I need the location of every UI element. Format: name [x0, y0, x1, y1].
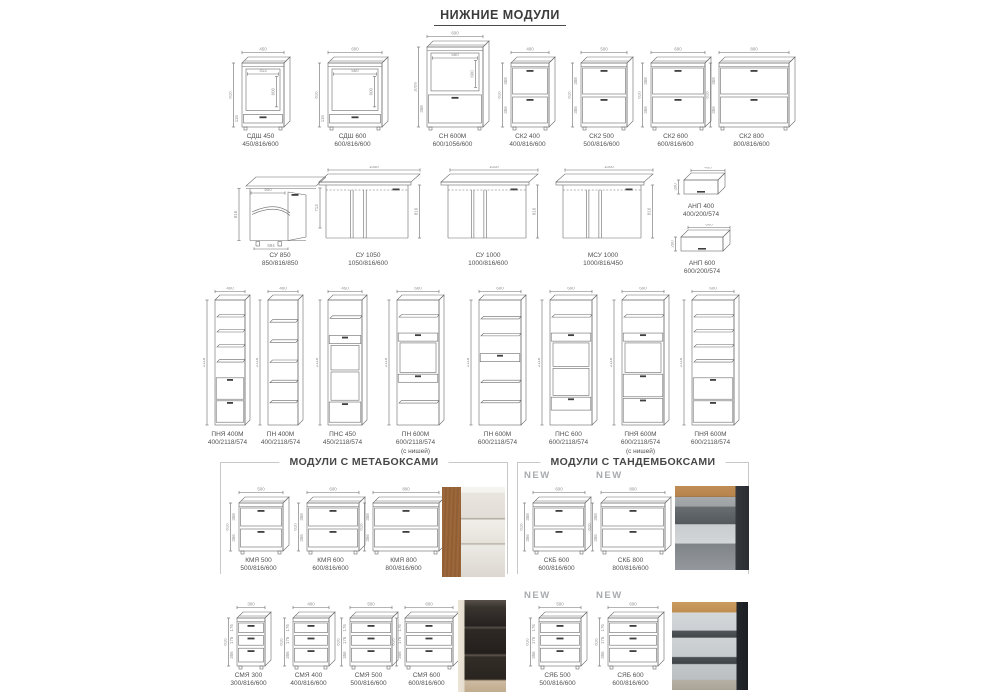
module-sdsh-600: 560600116600816СДШ 600600/816/600: [315, 47, 390, 150]
svg-text:176: 176: [397, 636, 402, 644]
svg-text:600: 600: [351, 47, 359, 52]
svg-text:358: 358: [711, 77, 716, 85]
svg-text:356: 356: [525, 534, 530, 542]
pns-450-drawing: 4502118: [316, 287, 369, 429]
svg-text:200: 200: [671, 240, 675, 248]
module-pns-450: 4502118ПНС 450450/2118/574: [316, 287, 369, 448]
svg-text:176: 176: [229, 636, 234, 644]
svg-text:358: 358: [419, 105, 424, 113]
svg-text:816: 816: [294, 523, 298, 531]
module-pns-600: 6002118ПНС 600600/2118/574: [538, 287, 599, 448]
svg-text:356: 356: [229, 651, 234, 659]
svg-text:176: 176: [531, 624, 536, 632]
svg-text:356: 356: [365, 534, 370, 542]
module-anp-600: 600200АНП 600600/200/574: [671, 224, 733, 277]
svg-text:2118: 2118: [467, 357, 470, 367]
metabox-photo-2: [458, 600, 506, 692]
pnya-600m-nisha-drawing: 6002118: [610, 287, 671, 429]
svg-text:600: 600: [271, 87, 276, 95]
tandembox-photo-1: [675, 486, 749, 570]
module-name: АНП 600: [637, 260, 767, 268]
module-dims: 1000/816/600: [423, 260, 553, 268]
anp-600-drawing: 600200: [671, 224, 733, 258]
svg-text:816: 816: [520, 523, 524, 531]
svg-text:400: 400: [704, 167, 712, 170]
module-label: СК2 800800/816/600: [687, 133, 817, 150]
svg-text:816: 816: [588, 523, 592, 531]
svg-text:600: 600: [329, 487, 337, 492]
svg-text:816: 816: [337, 638, 341, 646]
svg-text:816: 816: [229, 91, 233, 99]
svg-text:816: 816: [526, 638, 530, 646]
su-1050-drawing: 1050816: [313, 166, 423, 250]
module-pnya-600m: 6002118ПНЯ 600М600/2118/574: [680, 287, 741, 448]
svg-text:816: 816: [234, 210, 238, 218]
smya-600-drawing: 176176356600816: [392, 602, 461, 670]
svg-text:356: 356: [531, 651, 536, 659]
smya-400-drawing: 176176356400816: [280, 602, 337, 670]
module-dims: 1050/816/600: [303, 260, 433, 268]
svg-text:816: 816: [224, 638, 228, 646]
svg-text:358: 358: [299, 513, 304, 521]
catalog-page: НИЖНИЕ МОДУЛИ МОДУЛИ С МЕТАБОКСАМИ МОДУЛ…: [0, 0, 1000, 700]
svg-text:116: 116: [320, 115, 325, 123]
svg-text:413: 413: [259, 68, 267, 73]
anp-400-drawing: 400200: [674, 167, 728, 201]
svg-text:600: 600: [369, 87, 374, 95]
pnya-400m-drawing: 4002118: [203, 287, 252, 429]
svg-text:600: 600: [674, 47, 682, 52]
svg-text:594: 594: [267, 243, 275, 248]
new-badge: NEW: [596, 590, 623, 601]
module-label: АНП 600600/200/574: [637, 260, 767, 277]
pn-600m-drawing: 6002118: [467, 287, 528, 429]
sk2-800-drawing: 358356800816: [706, 47, 797, 131]
module-sk2-800: 358356800816СК2 800800/816/600: [706, 47, 797, 150]
svg-text:816: 816: [360, 523, 364, 531]
svg-text:2118: 2118: [385, 357, 388, 367]
svg-text:816: 816: [498, 91, 502, 99]
svg-text:356: 356: [299, 534, 304, 542]
svg-text:500: 500: [367, 602, 375, 607]
svg-text:356: 356: [711, 106, 716, 114]
pn-600m-nisha-drawing: 6002118: [385, 287, 446, 429]
svg-text:358: 358: [525, 513, 530, 521]
svg-text:200: 200: [674, 183, 678, 191]
svg-text:500: 500: [257, 487, 265, 492]
svg-text:358: 358: [365, 513, 370, 521]
skb-800-drawing: 358356800816: [588, 487, 673, 555]
kmya-600-drawing: 358356600816: [294, 487, 367, 555]
svg-text:356: 356: [593, 534, 598, 542]
svg-text:356: 356: [342, 651, 347, 659]
svg-text:358: 358: [503, 77, 508, 85]
module-su-1050: 1050816СУ 10501050/816/600: [313, 166, 423, 269]
svg-text:356: 356: [600, 651, 605, 659]
module-anp-400: 400200АНП 400400/200/574: [674, 167, 728, 220]
smya-500-drawing: 176176356500816: [337, 602, 400, 670]
svg-text:816: 816: [414, 207, 419, 215]
module-label: ПНЯ 600М600/2118/574: [646, 431, 776, 448]
module-name: ПНЯ 600М: [646, 431, 776, 439]
module-label: АНП 400400/200/574: [636, 203, 766, 220]
svg-text:176: 176: [342, 624, 347, 632]
svg-text:450: 450: [259, 47, 267, 52]
module-skb-800: 358356800816СКБ 800800/816/600: [588, 487, 673, 574]
svg-text:2118: 2118: [610, 357, 613, 367]
svg-text:1056: 1056: [414, 82, 418, 92]
svg-text:358: 358: [231, 513, 236, 521]
svg-text:356: 356: [285, 651, 290, 659]
svg-text:2118: 2118: [680, 357, 683, 367]
module-label: СУ 10001000/816/600: [423, 252, 553, 269]
new-badge: NEW: [524, 590, 551, 601]
svg-text:600: 600: [470, 70, 475, 78]
svg-text:176: 176: [397, 624, 402, 632]
module-label: СУ 10501050/816/600: [303, 252, 433, 269]
metabox-photo-1: [442, 487, 505, 577]
module-dims: 600/200/574: [637, 268, 767, 276]
svg-text:356: 356: [573, 106, 578, 114]
svg-text:500: 500: [556, 602, 564, 607]
svg-text:816: 816: [706, 91, 710, 99]
sk2-600-drawing: 358356600816: [638, 47, 713, 131]
module-dims: 600/2118/574: [646, 439, 776, 447]
module-name: АНП 400: [636, 203, 766, 211]
svg-text:2118: 2118: [256, 357, 259, 367]
tandembox-section-title: МОДУЛИ С ТАНДЕМБОКСАМИ: [541, 456, 726, 468]
svg-text:600: 600: [629, 602, 637, 607]
sk2-500-drawing: 358356500816: [568, 47, 635, 131]
tandembox-photo-2: [672, 602, 748, 690]
module-pn-400m: 4002118ПН 400М400/2118/574: [256, 287, 305, 448]
module-pnya-400m: 4002118ПНЯ 400М400/2118/574: [203, 287, 252, 448]
svg-text:600: 600: [451, 31, 459, 36]
module-su-1000: 1000816СУ 10001000/816/600: [435, 166, 541, 269]
svg-text:600: 600: [496, 287, 504, 291]
svg-text:800: 800: [750, 47, 758, 52]
syab-600-drawing: 176176356600816: [595, 602, 666, 670]
svg-text:816: 816: [595, 638, 599, 646]
svg-text:176: 176: [600, 624, 605, 632]
svg-text:400: 400: [226, 287, 234, 291]
smya-300-drawing: 176176356300816: [224, 602, 273, 670]
metabox-section-title: МОДУЛИ С МЕТАБОКСАМИ: [279, 456, 448, 468]
svg-text:600: 600: [414, 287, 422, 291]
svg-text:2118: 2118: [538, 357, 541, 367]
pns-600-drawing: 6002118: [538, 287, 599, 429]
svg-text:400: 400: [279, 287, 287, 291]
kmya-500-drawing: 358356500816: [226, 487, 291, 555]
svg-text:600: 600: [567, 287, 575, 291]
module-dims: 800/816/600: [687, 141, 817, 149]
sn-600m-drawing: 5606003586001056: [414, 31, 491, 131]
svg-text:300: 300: [247, 602, 255, 607]
module-kmya-800: 358356800816КМЯ 800800/816/600: [360, 487, 447, 574]
svg-text:176: 176: [600, 636, 605, 644]
svg-text:358: 358: [573, 77, 578, 85]
skb-600-drawing: 358356600816: [520, 487, 593, 555]
module-name: СУ 1000: [423, 252, 553, 260]
svg-text:600: 600: [425, 602, 433, 607]
svg-text:176: 176: [229, 624, 234, 632]
module-note: (с нишей): [351, 448, 481, 456]
module-smya-600: 176176356600816СМЯ 600600/816/600: [392, 602, 461, 689]
svg-text:400: 400: [307, 602, 315, 607]
module-note: (с нишей): [576, 448, 706, 456]
svg-text:176: 176: [531, 636, 536, 644]
svg-text:600: 600: [705, 224, 713, 227]
svg-text:400: 400: [526, 47, 534, 52]
svg-text:600: 600: [709, 287, 717, 291]
su-1000-drawing: 1000816: [435, 166, 541, 250]
new-badge: NEW: [524, 470, 551, 481]
svg-text:356: 356: [231, 534, 236, 542]
page-title: НИЖНИЕ МОДУЛИ: [434, 8, 566, 26]
page-title-wrap: НИЖНИЕ МОДУЛИ: [0, 6, 1000, 26]
svg-text:176: 176: [342, 636, 347, 644]
svg-text:356: 356: [397, 651, 402, 659]
svg-text:176: 176: [285, 624, 290, 632]
module-sdsh-450: 413600116450816СДШ 450450/816/600: [229, 47, 292, 150]
sdsh-450-drawing: 413600116450816: [229, 47, 292, 131]
svg-text:1000: 1000: [489, 166, 499, 169]
svg-text:450: 450: [341, 287, 349, 291]
svg-text:176: 176: [285, 636, 290, 644]
svg-text:2118: 2118: [203, 357, 206, 367]
svg-text:816: 816: [315, 91, 319, 99]
svg-text:356: 356: [643, 106, 648, 114]
svg-text:358: 358: [593, 513, 598, 521]
svg-text:816: 816: [392, 638, 396, 646]
module-pn-600m: 6002118ПН 600М600/2118/574: [467, 287, 528, 448]
svg-text:500: 500: [264, 187, 272, 192]
pnya-600m-drawing: 6002118: [680, 287, 741, 429]
module-dims: 400/200/574: [636, 211, 766, 219]
kmya-800-drawing: 358356800816: [360, 487, 447, 555]
svg-text:2118: 2118: [316, 357, 319, 367]
svg-text:1000: 1000: [604, 166, 614, 169]
pn-400m-drawing: 4002118: [256, 287, 305, 429]
sdsh-600-drawing: 560600116600816: [315, 47, 390, 131]
svg-text:816: 816: [280, 638, 284, 646]
svg-text:800: 800: [402, 487, 410, 492]
svg-text:816: 816: [638, 91, 642, 99]
svg-text:600: 600: [639, 287, 647, 291]
svg-text:816: 816: [532, 207, 537, 215]
svg-text:816: 816: [568, 91, 572, 99]
sk2-400-drawing: 358356400816: [498, 47, 557, 131]
syab-500-drawing: 176176356500816: [526, 602, 589, 670]
svg-text:800: 800: [629, 487, 637, 492]
module-syab-600: 176176356600816СЯБ 600600/816/600: [595, 602, 666, 689]
svg-text:500: 500: [600, 47, 608, 52]
svg-text:600: 600: [555, 487, 563, 492]
module-name: СУ 1050: [303, 252, 433, 260]
svg-text:116: 116: [234, 115, 239, 123]
module-name: СК2 800: [687, 133, 817, 141]
svg-text:1050: 1050: [369, 166, 379, 169]
svg-text:560: 560: [351, 68, 359, 73]
svg-text:356: 356: [503, 106, 508, 114]
new-badge: NEW: [596, 470, 623, 481]
svg-text:560: 560: [451, 52, 459, 57]
svg-text:816: 816: [226, 523, 230, 531]
svg-text:358: 358: [643, 77, 648, 85]
